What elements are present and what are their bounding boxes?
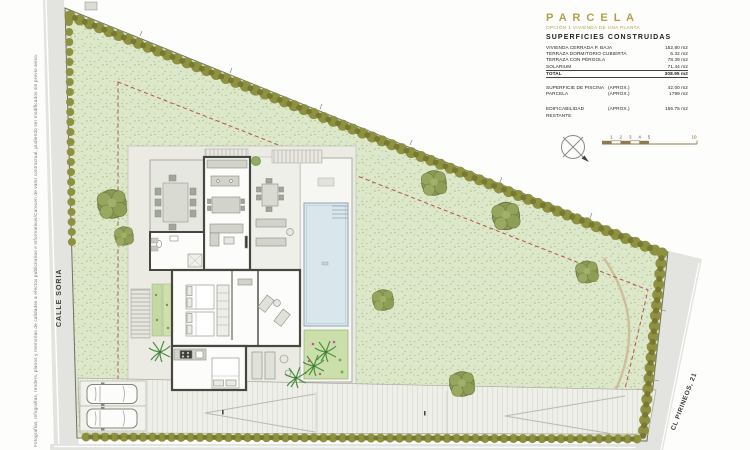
car-top-view bbox=[87, 383, 137, 406]
surface-row-value: 71.44 m2 bbox=[668, 64, 688, 70]
pergola-slats bbox=[272, 150, 322, 163]
remaining-row-value: 156.75 m2 bbox=[665, 106, 688, 118]
north-arrow-compass bbox=[562, 136, 590, 163]
parcel-subtitle: OPCIÓN 1 VIVIENDA DE UNA PLANTA bbox=[546, 25, 688, 30]
pool-zone bbox=[300, 158, 352, 382]
shrub bbox=[252, 157, 261, 166]
remaining-row-note: (APROX.) bbox=[608, 106, 642, 118]
scale-tick-label: 4 bbox=[638, 135, 641, 140]
scale-bar: 1 2 3 4 5 10 bbox=[602, 135, 697, 145]
site-plan-sheet: 1 2 3 4 5 10 P A R C E L A OPCIÓN 1 VIVI… bbox=[0, 0, 750, 450]
scale-end-label: 10 bbox=[691, 135, 697, 140]
surface-row: SOLARIUM 71.44 m2 bbox=[546, 64, 688, 71]
scale-tick-label: 1 bbox=[610, 135, 613, 140]
street-label-calle-soria: CALLE SORIA bbox=[56, 269, 63, 327]
disclaimer-text: Fotografías, infografías, renders, plano… bbox=[33, 7, 38, 447]
street-bottom bbox=[50, 444, 662, 450]
solarium-furniture bbox=[318, 178, 334, 186]
west-garden-strip bbox=[131, 284, 173, 338]
approx-row-value: 1799 m2 bbox=[669, 91, 688, 97]
surface-row-label: TOTAL bbox=[546, 71, 562, 77]
car-top-view bbox=[87, 407, 137, 430]
pergola-slats bbox=[205, 149, 248, 157]
scale-tick-label: 5 bbox=[648, 135, 651, 140]
approx-row-note: (APROX.) bbox=[608, 91, 642, 97]
remaining-row-label: EDIFICABILIDAD RESTANTE bbox=[546, 106, 608, 118]
scale-tick-label: 3 bbox=[629, 135, 632, 140]
surface-row-label: SOLARIUM bbox=[546, 64, 571, 70]
surface-row-total: TOTAL 308.95 m2 bbox=[546, 71, 688, 78]
remaining-row: EDIFICABILIDAD RESTANTE (APROX.) 156.75 … bbox=[546, 106, 688, 118]
living-block bbox=[204, 157, 250, 270]
title-block: P A R C E L A OPCIÓN 1 VIVIENDA DE UNA P… bbox=[546, 12, 688, 119]
surfaces-heading: SUPERFICIES CONSTRUIDAS bbox=[546, 34, 688, 41]
surface-row-value: 308.95 m2 bbox=[665, 71, 688, 77]
exterior-steps bbox=[131, 289, 150, 338]
scale-tick-label: 2 bbox=[620, 135, 623, 140]
approx-row-label: PARCELA bbox=[546, 91, 608, 97]
parking-area bbox=[80, 381, 146, 431]
utility-box bbox=[85, 2, 97, 10]
parcel-title: P A R C E L A bbox=[546, 12, 688, 24]
